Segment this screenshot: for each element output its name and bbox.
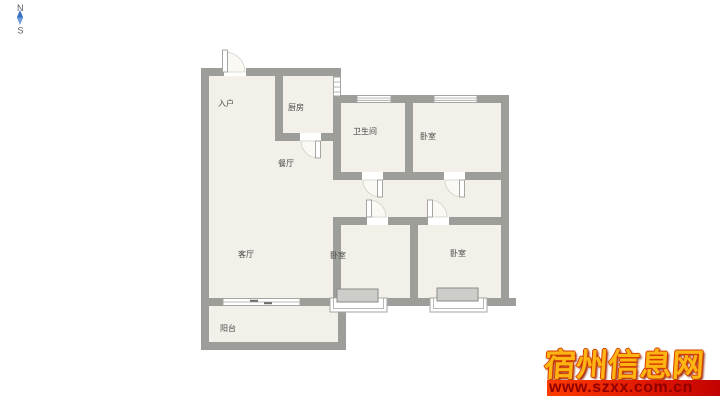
compass-needle-south-icon [17,18,23,26]
door-opening [300,133,321,141]
door-opening [367,217,388,225]
watermark-url-bar: www.szxx.com.cn [547,380,720,396]
watermark-site-url: www.szxx.com.cn [547,380,720,396]
wall [338,306,346,350]
bedroom-bottom-middle-bay-window [330,289,387,312]
wall [201,342,346,350]
entry-door [223,50,247,76]
compass: N S [17,3,24,36]
door-leaf [428,200,433,217]
bedroom-bottom-right-bay-window [430,288,487,312]
room-label-bedroom-bottom-right: 卧室 [450,248,466,258]
floor-left-section [209,76,333,298]
wall [275,76,283,141]
room-label-kitchen: 厨房 [288,102,304,112]
door-leaf [460,180,465,197]
wall [201,68,209,350]
wall [405,103,413,180]
bedroom-top-right-window [434,96,477,103]
room-label-dining: 餐厅 [278,159,294,168]
floorplan-drawing: N S [0,0,720,405]
wall [333,217,509,225]
room-label-balcony: 阳台 [220,323,236,333]
room-label-entry: 入户 [218,98,234,108]
watermark-site-name: 宿州信息网 [543,348,720,382]
room-label-bathroom: 卫生间 [353,126,377,136]
compass-south-label: S [18,26,24,36]
wall [410,225,418,306]
door-opening [444,172,465,180]
wall [501,95,509,306]
door-leaf [378,180,383,197]
door-opening [428,217,449,225]
wall [333,172,509,180]
kitchen-window [334,77,341,96]
bathroom-window [357,96,391,103]
door-leaf [223,50,228,72]
door-opening [362,172,383,180]
door-leaf [316,141,321,158]
room-label-living: 客厅 [238,249,254,259]
door-leaf [367,200,372,217]
floorplan-page: N S [0,0,720,405]
room-label-bedroom-bottom-middle: 卧室 [330,250,346,260]
balcony-sliding-door [223,299,300,306]
room-label-bedroom-top-right: 卧室 [420,131,436,141]
